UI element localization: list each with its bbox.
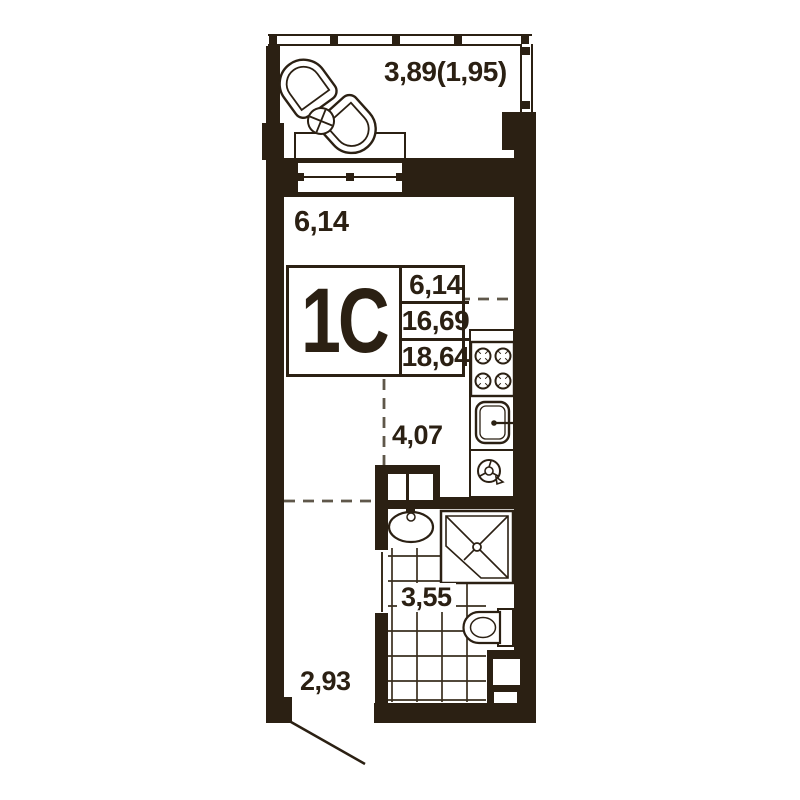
label-hall-area: 2,93 bbox=[300, 668, 351, 695]
unit-areas: 6,14 16,69 18,64 bbox=[402, 268, 470, 374]
label-kitchen-area: 4,07 bbox=[392, 422, 443, 449]
label-bathroom-area: 3,55 bbox=[397, 583, 456, 612]
shower-icon bbox=[441, 511, 513, 583]
unit-area-row: 6,14 bbox=[402, 268, 470, 301]
kitchen-sink-icon bbox=[476, 402, 513, 443]
plan-linework bbox=[0, 0, 800, 800]
entry-door-swing bbox=[291, 722, 365, 764]
unit-info-box: 1С 6,14 16,69 18,64 bbox=[286, 265, 465, 377]
label-living-area: 6,14 bbox=[294, 208, 348, 237]
unit-area-row: 18,64 bbox=[402, 338, 470, 374]
label-balcony-area: 3,89(1,95) bbox=[384, 58, 507, 86]
floor-plan: 1С 6,14 16,69 18,64 3,89(1,95) 6,14 4,07… bbox=[0, 0, 800, 800]
unit-area-row: 16,69 bbox=[402, 301, 470, 337]
wash-basin-icon bbox=[389, 504, 433, 542]
unit-type: 1С bbox=[289, 268, 402, 374]
toilet-icon bbox=[464, 609, 514, 646]
